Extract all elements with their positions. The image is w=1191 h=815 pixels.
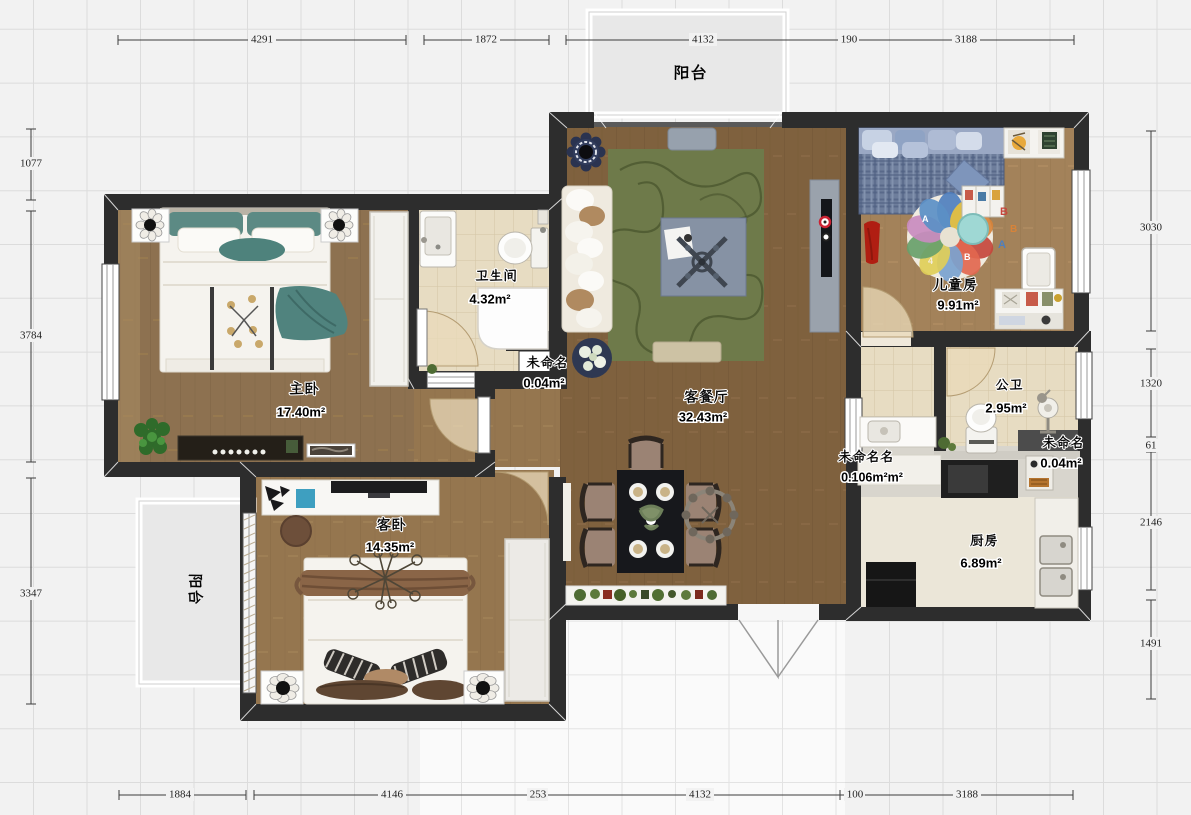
svg-text:4.32m²: 4.32m² — [469, 291, 511, 306]
svg-text:1077: 1077 — [20, 158, 43, 170]
svg-text:6.89m²: 6.89m² — [960, 555, 1002, 570]
svg-text:2.95m²: 2.95m² — [985, 400, 1027, 415]
svg-text:A: A — [922, 214, 929, 224]
svg-text:B: B — [964, 252, 971, 262]
svg-text:190: 190 — [841, 34, 858, 46]
svg-text:1884: 1884 — [169, 789, 192, 801]
svg-text:4132: 4132 — [692, 34, 714, 46]
svg-text:3188: 3188 — [956, 789, 979, 801]
svg-text:A: A — [998, 239, 1006, 251]
svg-text:0.04m²: 0.04m² — [1040, 455, 1082, 470]
svg-text:100: 100 — [847, 789, 864, 801]
svg-text:0.04m²: 0.04m² — [523, 375, 565, 390]
svg-text:1491: 1491 — [1140, 638, 1162, 650]
svg-text:3347: 3347 — [20, 588, 43, 600]
svg-text:0.106m²m²: 0.106m²m² — [841, 470, 903, 484]
svg-text:B: B — [1000, 206, 1008, 218]
svg-text:9.91m²: 9.91m² — [937, 297, 979, 312]
svg-text:B: B — [1010, 224, 1017, 235]
svg-text:3030: 3030 — [1140, 222, 1163, 234]
svg-text:3188: 3188 — [955, 34, 978, 46]
svg-text:4: 4 — [928, 256, 933, 266]
svg-text:253: 253 — [530, 789, 547, 801]
svg-text:4291: 4291 — [251, 34, 273, 46]
svg-text:3784: 3784 — [20, 330, 43, 342]
svg-text:4146: 4146 — [381, 789, 404, 801]
svg-text:61: 61 — [1146, 440, 1157, 452]
svg-text:4132: 4132 — [689, 789, 711, 801]
svg-text:17.40m²: 17.40m² — [277, 404, 326, 419]
svg-text:1872: 1872 — [475, 34, 497, 46]
svg-text:2146: 2146 — [1140, 517, 1163, 529]
svg-text:1320: 1320 — [1140, 378, 1163, 390]
svg-text:14.35m²: 14.35m² — [366, 539, 415, 554]
svg-text:32.43m²: 32.43m² — [679, 409, 728, 424]
